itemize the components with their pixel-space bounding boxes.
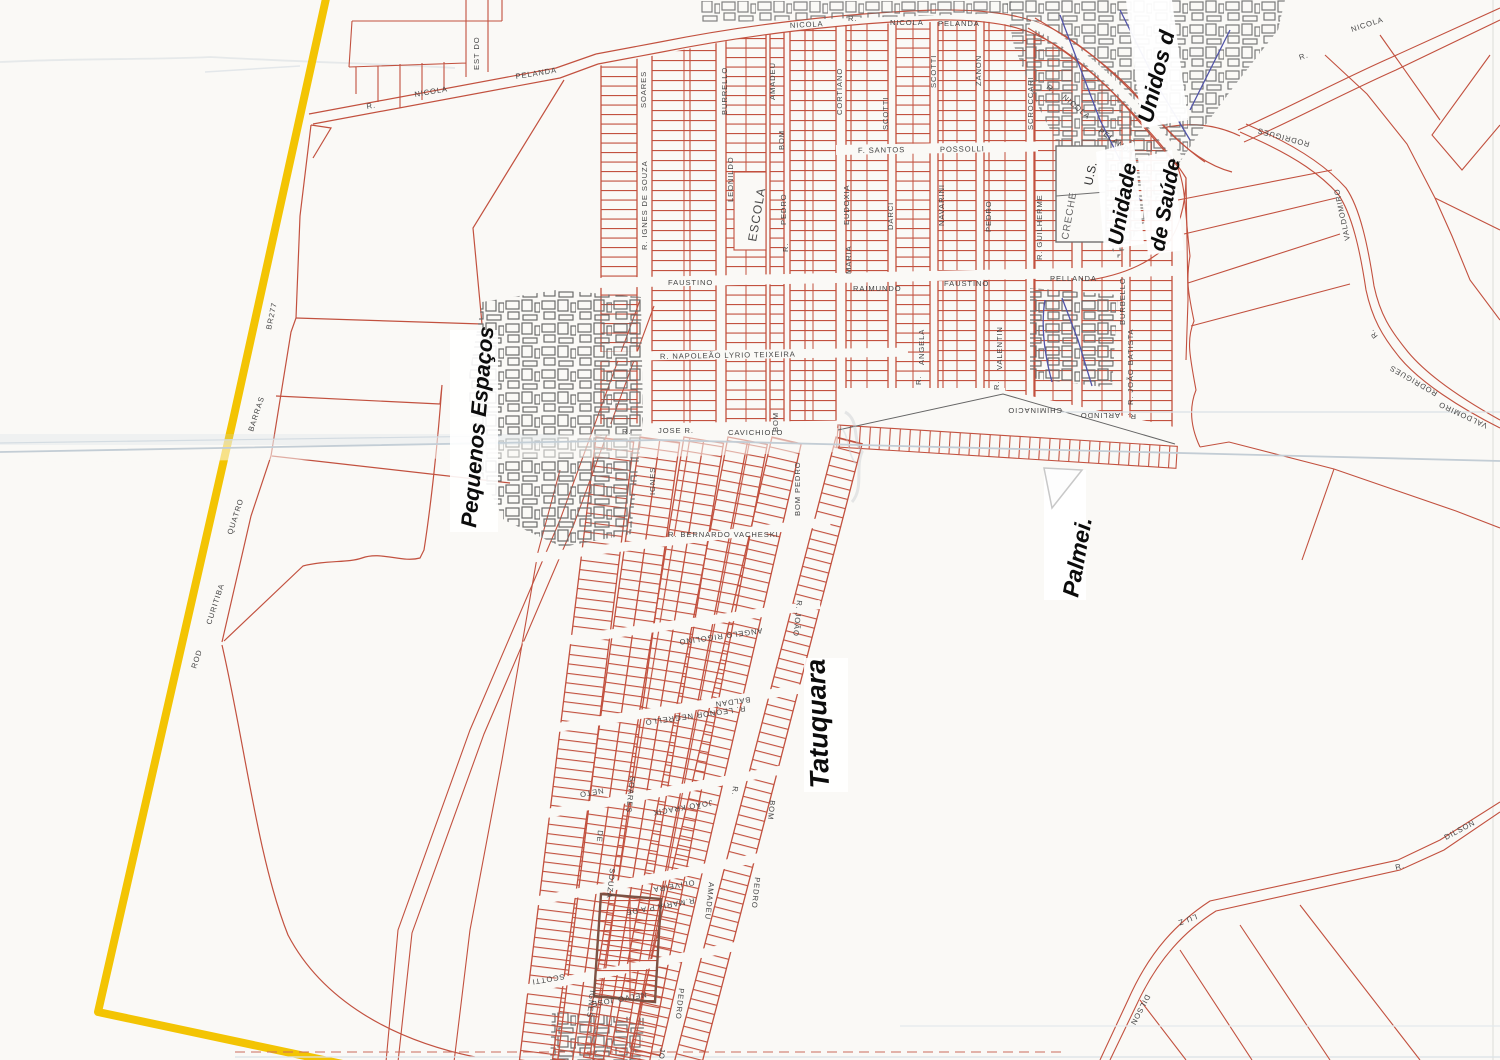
svg-text:Tatuquara: Tatuquara bbox=[800, 658, 835, 788]
svg-text:ANGELA: ANGELA bbox=[917, 329, 926, 365]
svg-text:R.: R. bbox=[622, 427, 631, 436]
svg-text:BOM PEDRO: BOM PEDRO bbox=[793, 461, 802, 516]
svg-text:R. IGNES DE SOUZA: R. IGNES DE SOUZA bbox=[640, 160, 649, 250]
svg-text:FAUSTINO: FAUSTINO bbox=[668, 278, 713, 287]
svg-text:R. GUILHERME: R. GUILHERME bbox=[1035, 194, 1044, 260]
svg-text:BOM: BOM bbox=[777, 130, 786, 150]
svg-text:BOM: BOM bbox=[771, 412, 780, 432]
svg-text:R.: R. bbox=[1127, 412, 1136, 421]
svg-text:PELANDA: PELANDA bbox=[938, 19, 980, 28]
svg-text:RAIMUNDO: RAIMUNDO bbox=[853, 284, 902, 293]
svg-text:JOSE R.: JOSE R. bbox=[658, 426, 694, 435]
svg-text:R.: R. bbox=[730, 786, 740, 796]
svg-text:MARIA: MARIA bbox=[844, 245, 853, 274]
svg-text:SCOTTI: SCOTTI bbox=[881, 97, 890, 130]
svg-text:R.: R. bbox=[366, 100, 377, 110]
svg-text:DARCI: DARCI bbox=[886, 202, 895, 230]
svg-text:ZANON: ZANON bbox=[974, 55, 983, 86]
svg-text:VALENTIN: VALENTIN bbox=[995, 326, 1004, 370]
svg-text:EUDOXIA: EUDOXIA bbox=[842, 184, 851, 225]
svg-text:BURRELLO: BURRELLO bbox=[720, 67, 729, 115]
svg-text:ARLINDO: ARLINDO bbox=[1080, 411, 1120, 420]
svg-text:BURBELLO: BURBELLO bbox=[1118, 277, 1127, 325]
svg-text:CHIMINACIO: CHIMINACIO bbox=[1007, 406, 1062, 415]
svg-text:IGNES: IGNES bbox=[648, 467, 657, 495]
svg-text:NICOLA: NICOLA bbox=[890, 18, 924, 27]
svg-text:DE: DE bbox=[595, 830, 605, 843]
svg-text:CORTIANO: CORTIANO bbox=[835, 68, 844, 115]
svg-text:PEDRO: PEDRO bbox=[779, 193, 788, 225]
svg-text:R.: R. bbox=[781, 243, 790, 252]
svg-text:R.: R. bbox=[914, 376, 923, 385]
svg-text:F. SANTOS: F. SANTOS bbox=[858, 145, 905, 155]
svg-text:EST DO: EST DO bbox=[472, 36, 481, 70]
svg-text:SCOTTI: SCOTTI bbox=[929, 55, 938, 88]
svg-text:NICOLA: NICOLA bbox=[790, 19, 824, 30]
svg-text:R. JOÃO BATISTA: R. JOÃO BATISTA bbox=[1126, 328, 1135, 405]
svg-text:AMADEU: AMADEU bbox=[768, 62, 777, 100]
svg-text:PEDRO: PEDRO bbox=[984, 200, 993, 232]
svg-text:PELLANDA: PELLANDA bbox=[1050, 274, 1097, 283]
svg-text:LEONILDO: LEONILDO bbox=[726, 156, 735, 202]
svg-text:R.: R. bbox=[992, 381, 1001, 390]
svg-text:R.: R. bbox=[848, 14, 857, 23]
svg-text:SCROCCARI: SCROCCARI bbox=[1026, 76, 1035, 130]
svg-text:R. BERNARDO VACHESKI: R. BERNARDO VACHESKI bbox=[668, 530, 779, 539]
svg-text:POSSOLLI: POSSOLLI bbox=[940, 144, 985, 154]
svg-text:SOARES: SOARES bbox=[639, 71, 648, 108]
svg-text:FAUSTINO: FAUSTINO bbox=[944, 279, 989, 288]
svg-text:NAVARINI: NAVARINI bbox=[937, 184, 946, 226]
